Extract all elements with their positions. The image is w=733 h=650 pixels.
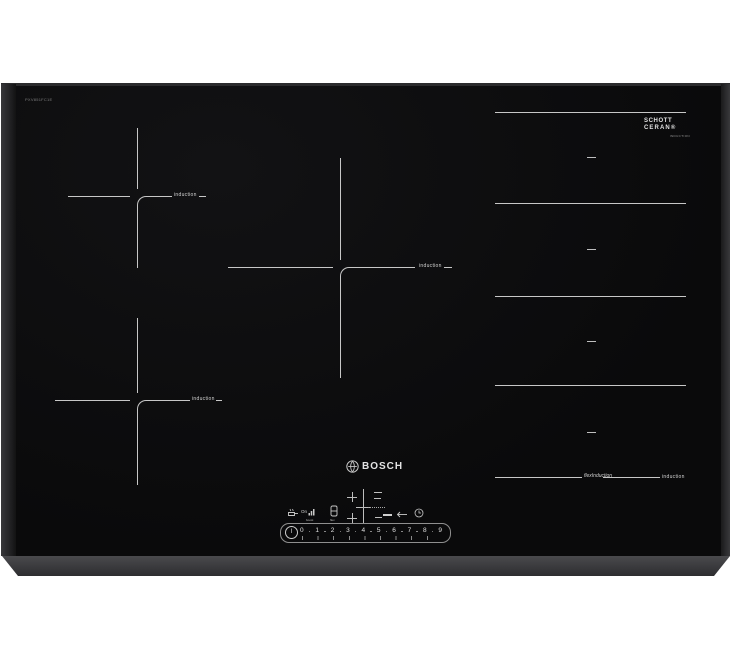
schott-line2: CERAN® [644, 125, 690, 132]
bosch-wordmark: BOSCH [362, 462, 403, 472]
zone1-arm-bottom [137, 205, 138, 268]
level-dot [309, 531, 311, 533]
map-flex-dash-3 [375, 517, 382, 518]
product-photo: PXV851FC1E SCHOTT CERAN® INDUCTION induc… [0, 0, 733, 650]
bosch-logo: BOSCH [346, 460, 403, 473]
hob-glass-surface [1, 83, 730, 556]
minus-key[interactable] [383, 514, 392, 516]
hob-front-trim [2, 556, 730, 576]
flex-dash-2 [587, 249, 596, 250]
zone2-arm-left [228, 267, 333, 268]
hob-right-bezel [721, 84, 730, 556]
level-1[interactable]: 1 [315, 528, 319, 535]
pan-icon [287, 508, 299, 517]
flex-line-3 [495, 296, 686, 297]
flex-line-5b [603, 477, 660, 478]
level-5[interactable]: 5 [377, 528, 381, 535]
zone1-arm-top [137, 128, 138, 189]
map-dotted-line [368, 507, 385, 508]
hob-top-bezel [1, 83, 730, 86]
map-plus-bottom-h [347, 518, 357, 519]
flex-dash-1 [587, 157, 596, 158]
flex-zone-icon [330, 505, 338, 517]
zone3-arm-bottom [137, 409, 138, 485]
schott-line1: SCHOTT [644, 118, 690, 125]
flex-line-2 [495, 203, 686, 204]
zone1-arm-right-a [146, 196, 172, 197]
flex-line-4 [495, 385, 686, 386]
model-number-label: PXV851FC1E [25, 98, 52, 102]
zone2-arm-bottom [340, 276, 341, 378]
level-4[interactable]: 4 [362, 528, 366, 535]
level-6[interactable]: 6 [392, 528, 396, 535]
zone1-arm-right-b [199, 196, 206, 197]
level-dot [370, 531, 372, 533]
flex-induction-label: induction [662, 475, 685, 480]
frying-sensor-key[interactable]: On [287, 508, 307, 517]
map-flex-dash-2 [374, 498, 381, 499]
level-dot [432, 531, 434, 533]
flex-dash-3 [587, 341, 596, 342]
flex-line-5a [495, 477, 582, 478]
level-7[interactable]: 7 [408, 528, 412, 535]
level-2[interactable]: 2 [331, 528, 335, 535]
bosch-emblem-icon [346, 460, 359, 473]
zone3-arm-right-b [216, 400, 222, 401]
schott-ceran-logo: SCHOTT CERAN® INDUCTION [644, 118, 690, 138]
level-dot [386, 531, 388, 533]
slider-ticks [302, 536, 442, 540]
level-0[interactable]: 0 [300, 528, 304, 535]
level-dot [401, 531, 403, 533]
level-dot [355, 531, 357, 533]
map-flex-dash-1 [374, 492, 382, 493]
boost-icon [308, 508, 315, 516]
level-9[interactable]: 9 [438, 528, 442, 535]
flex-label: flex [330, 519, 335, 522]
clock-icon [414, 508, 424, 518]
zone3-arm-top [137, 318, 138, 393]
level-8[interactable]: 8 [423, 528, 427, 535]
flex-dash-4 [587, 432, 596, 433]
level-dot [340, 531, 342, 533]
pan-on-label: On [301, 510, 307, 515]
arrow-left-icon [396, 511, 408, 518]
level-dot [324, 531, 326, 533]
hob-left-bezel [1, 84, 16, 556]
level-scale[interactable]: 0 1 2 3 4 5 6 7 8 9 [300, 527, 442, 536]
zone2-arm-right-b [444, 267, 452, 268]
zone3-arm-right-a [146, 400, 190, 401]
boost-label: boost [306, 519, 313, 522]
zone2-arm-top [340, 158, 341, 260]
zone1-arm-left [68, 196, 130, 197]
level-3[interactable]: 3 [346, 528, 350, 535]
power-button[interactable]: I [285, 526, 298, 539]
flex-line-1 [495, 112, 686, 113]
zone1-induction-label: induction [174, 193, 197, 198]
zone2-arm-right-a [349, 267, 415, 268]
level-dot [416, 531, 418, 533]
zone2-induction-label: induction [419, 264, 442, 269]
zone3-induction-label: induction [192, 397, 215, 402]
schott-sub: INDUCTION [644, 135, 690, 138]
map-plus-top-h [347, 497, 357, 498]
zone3-arm-left [55, 400, 130, 401]
